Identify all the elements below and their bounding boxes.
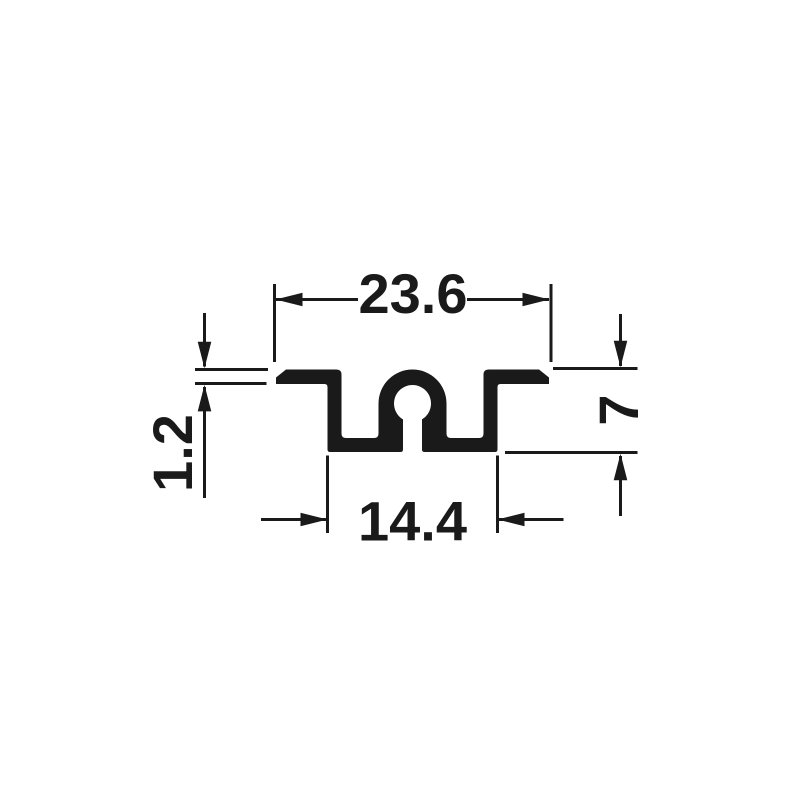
dimension-top-width: 23.6 <box>275 262 552 362</box>
arrowhead-right <box>523 293 550 306</box>
arrowhead-down <box>198 342 212 369</box>
profile-cross-section <box>276 370 549 453</box>
dimension-bottom-width: 14.4 <box>261 456 564 553</box>
arrowhead-left <box>276 293 303 306</box>
arrowhead-up <box>198 385 212 412</box>
dimension-height: 7 <box>505 314 650 516</box>
technical-drawing-canvas: 23.6 14.4 1.2 <box>0 0 800 800</box>
arrowhead-up <box>614 454 628 481</box>
arrowhead-right <box>498 513 525 526</box>
arrowhead-left <box>301 513 328 526</box>
dimension-flange-thickness: 1.2 <box>141 313 268 498</box>
dimension-height-value: 7 <box>587 394 650 425</box>
dimension-bottom-width-value: 14.4 <box>358 490 467 553</box>
profile-outline <box>276 370 549 453</box>
drawing-svg: 23.6 14.4 1.2 <box>0 0 800 800</box>
dimension-flange-thickness-value: 1.2 <box>141 414 204 492</box>
arrowhead-down <box>614 341 628 368</box>
dimension-top-width-value: 23.6 <box>359 262 468 325</box>
